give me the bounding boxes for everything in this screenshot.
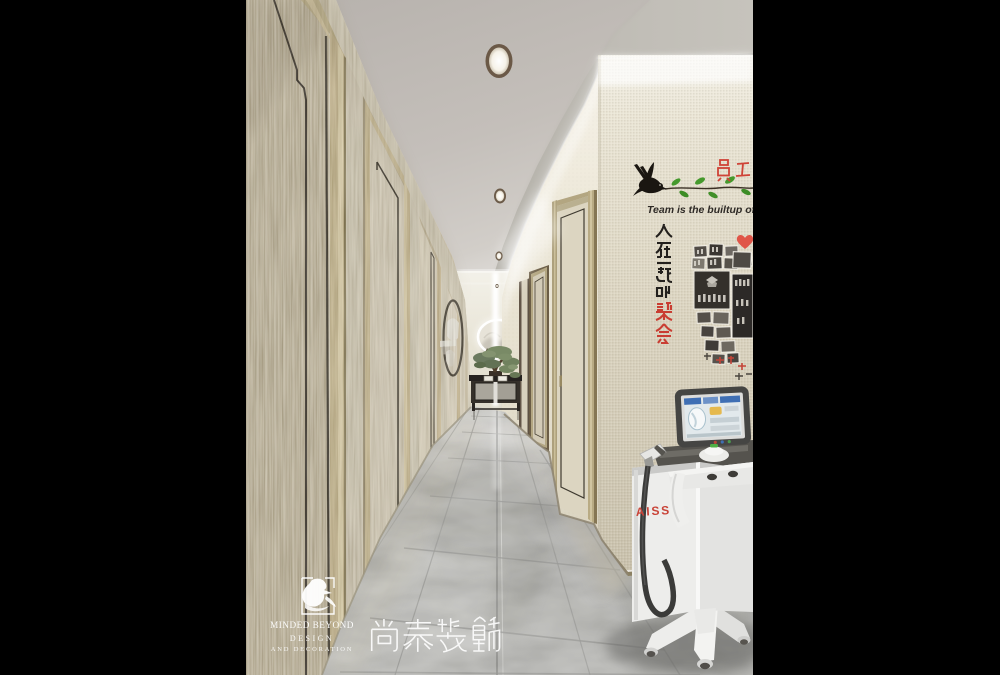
- svg-text:MINDED BEYOND: MINDED BEYOND: [270, 620, 354, 630]
- svg-text:Team is the builtup of h: Team is the builtup of h: [647, 204, 764, 216]
- svg-text:AISS: AISS: [635, 503, 671, 519]
- svg-text:AND DECORATION: AND DECORATION: [271, 646, 353, 653]
- svg-text:DESIGN: DESIGN: [290, 634, 334, 643]
